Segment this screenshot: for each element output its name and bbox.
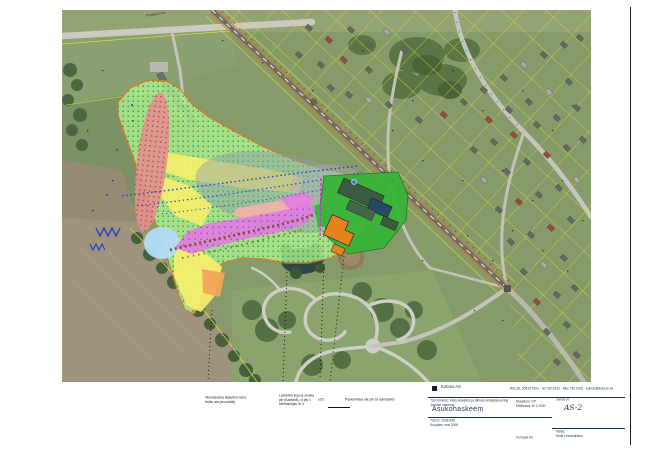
company-contact: Riia 35, 50410 Tartu · tel 730 0310 · fa… xyxy=(510,387,650,396)
map-canvas xyxy=(62,10,591,382)
work-info: Töö nr: 2008-056 Kuupäev: mai 2008 xyxy=(430,419,486,436)
drawing-number: AS-2 xyxy=(564,403,582,412)
company-logo xyxy=(432,386,437,391)
sheet-border-line xyxy=(630,7,631,445)
note-b-line3: seletuskirjas, lk 4 xyxy=(279,403,314,407)
title-block-rule-mid xyxy=(428,417,552,418)
company-name: Kobras AS xyxy=(441,385,474,393)
title-block-rule-right xyxy=(552,428,625,429)
zone-lightblue xyxy=(144,227,180,259)
blue-marker xyxy=(352,180,357,185)
note-noise-area: Olemasoleva lasketiiru müra leviku ala (… xyxy=(205,396,287,413)
client-info: Tellija: Keila Linnavalitsus xyxy=(556,430,610,447)
legend-mark-label: ±0,0 xyxy=(318,398,331,407)
sheet-format: Formaat A3 xyxy=(516,436,550,445)
note-a-line2: leviku ala (arvutuslik) xyxy=(205,400,246,404)
title-block-rule-top xyxy=(428,397,625,398)
title-block: Kobras AS Riia 35, 50410 Tartu · tel 730… xyxy=(428,384,628,448)
legend-mark-line xyxy=(328,407,350,408)
drawing-title: Asukohaskeem xyxy=(432,406,483,413)
